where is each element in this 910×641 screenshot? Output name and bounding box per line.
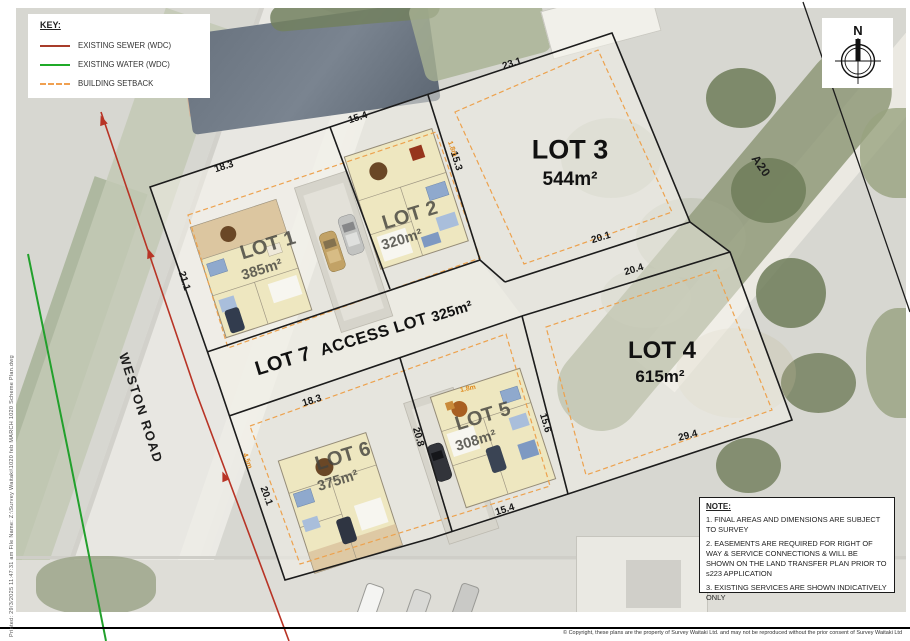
note-title: NOTE: xyxy=(706,502,888,511)
key-item-setback: BUILDING SETBACK xyxy=(40,74,210,93)
note-item-1: 1. FINAL AREAS AND DIMENSIONS ARE SUBJEC… xyxy=(706,515,888,535)
scheme-plan-page: LOT 1385m²LOT 2320m²LOT 3544m²LOT 4615m²… xyxy=(0,0,910,641)
note-item-2: 2. EASEMENTS ARE REQUIRED FOR RIGHT OF W… xyxy=(706,539,888,579)
key-item-water: EXISTING WATER (WDC) xyxy=(40,55,210,74)
key-item-label: BUILDING SETBACK xyxy=(78,79,153,88)
note-item-3: 3. EXISTING SERVICES ARE SHOWN INDICATIV… xyxy=(706,583,888,603)
sewer-line-swatch xyxy=(40,45,70,47)
north-label: N xyxy=(853,23,862,38)
key-legend: KEY: EXISTING SEWER (WDC) EXISTING WATER… xyxy=(28,14,210,98)
key-title: KEY: xyxy=(40,20,210,30)
copyright-text: © Copyright, these plans are the propert… xyxy=(563,630,902,636)
print-info-text: Printed: 29/3/2025 11:47:31 am File Name… xyxy=(9,355,15,637)
setback-line-swatch xyxy=(40,83,70,85)
key-item-label: EXISTING SEWER (WDC) xyxy=(78,41,171,50)
key-item-label: EXISTING WATER (WDC) xyxy=(78,60,170,69)
note-box: NOTE: 1. FINAL AREAS AND DIMENSIONS ARE … xyxy=(699,497,895,593)
north-compass: N xyxy=(822,18,893,88)
water-line-swatch xyxy=(40,64,70,66)
footer-divider xyxy=(0,627,910,629)
compass-icon: N xyxy=(822,18,893,88)
key-item-sewer: EXISTING SEWER (WDC) xyxy=(40,36,210,55)
water-line xyxy=(28,254,106,641)
